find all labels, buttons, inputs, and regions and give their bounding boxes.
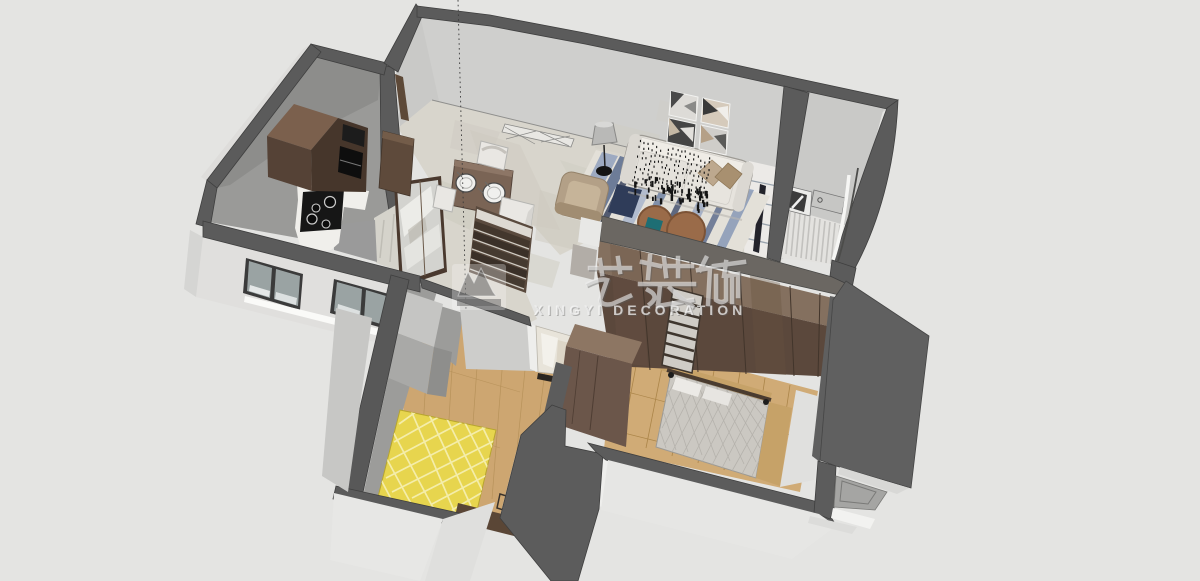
svg-text:XINGYI DECORATION: XINGYI DECORATION (534, 302, 746, 318)
